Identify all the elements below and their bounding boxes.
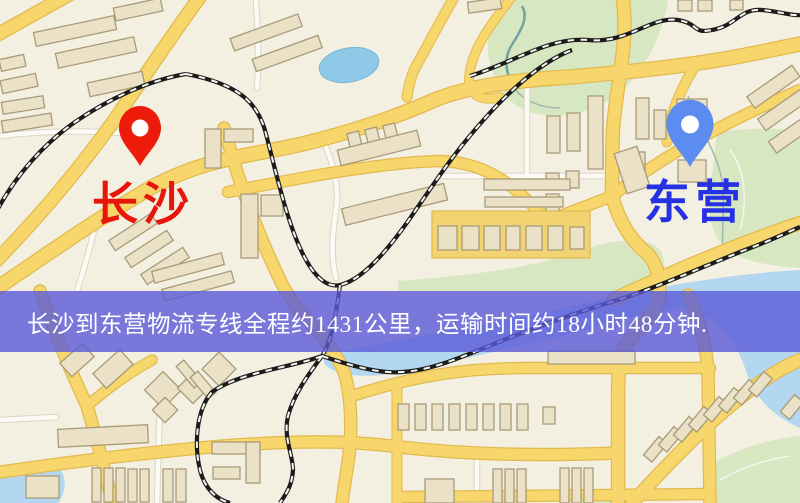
map-screenshot: 长沙 东营 长沙到东营物流专线全程约1431公里，运输时间约18小时48分钟. (0, 0, 800, 503)
origin-label: 长沙 (92, 182, 194, 228)
route-info-banner: 长沙到东营物流专线全程约1431公里，运输时间约18小时48分钟. (0, 291, 800, 352)
route-info-text: 长沙到东营物流专线全程约1431公里，运输时间约18小时48分钟. (0, 305, 707, 339)
map-canvas (0, 0, 800, 503)
destination-label: 东营 (644, 180, 746, 226)
